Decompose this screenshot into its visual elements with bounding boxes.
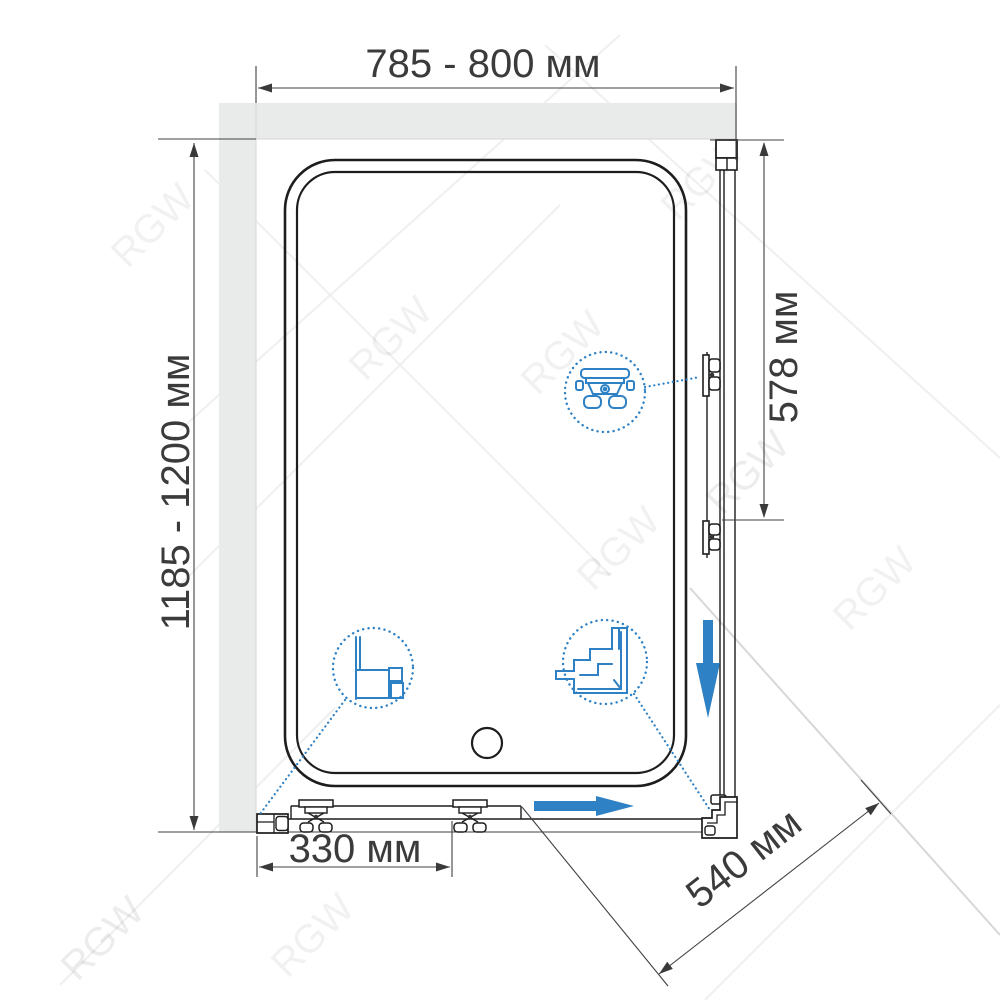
detail-callouts bbox=[260, 352, 710, 814]
dimension-label-side-panel-width: 540 мм bbox=[678, 801, 810, 917]
watermark-text: RGW bbox=[103, 176, 203, 276]
shower-enclosure-diagram: RGW RGW RGW RGW RGW RGW RGW RGW RGW bbox=[0, 0, 1000, 1000]
bracket-screw bbox=[710, 535, 715, 540]
dimension-label-top-width: 785 - 800 мм bbox=[365, 42, 600, 86]
wall-profile-icon bbox=[356, 637, 403, 699]
panel-bracket-top bbox=[703, 355, 720, 396]
door-roller bbox=[453, 800, 487, 832]
leader-line bbox=[634, 694, 710, 810]
left-wall bbox=[219, 103, 256, 832]
wall-profile-detail bbox=[333, 628, 413, 708]
watermark-text: RGW bbox=[513, 303, 613, 403]
panel-slide-arrow-down bbox=[696, 620, 720, 718]
diagram-canvas: RGW RGW RGW RGW RGW RGW RGW RGW RGW bbox=[0, 0, 1000, 1000]
watermark-text: RGW bbox=[263, 886, 363, 986]
side-panel-top-profile bbox=[716, 140, 737, 170]
dimension-top-width: 785 - 800 мм bbox=[256, 42, 736, 160]
watermark-text: RGW bbox=[53, 889, 153, 989]
dimension-label-left-height: 1185 - 1200 мм bbox=[154, 354, 198, 631]
corner-connector-detail bbox=[556, 620, 647, 704]
dimension-label-door-bottom: 330 мм bbox=[289, 827, 422, 871]
corner-connector bbox=[702, 795, 737, 838]
dimension-label-right-panel: 578 мм bbox=[762, 291, 806, 424]
door-slide-arrow-right bbox=[534, 796, 634, 816]
watermark-text: RGW bbox=[653, 129, 753, 229]
roller-carriage-icon bbox=[576, 369, 634, 408]
corner-connector-icon bbox=[556, 628, 627, 693]
detail-circle bbox=[563, 620, 647, 704]
roller-carriage-detail bbox=[565, 352, 645, 432]
top-wall bbox=[253, 103, 737, 139]
drain-circle bbox=[472, 728, 502, 758]
watermark-text: RGW bbox=[698, 423, 798, 523]
bracket-screw bbox=[710, 373, 715, 378]
leader-line bbox=[260, 700, 345, 814]
leader-line bbox=[645, 377, 700, 387]
watermark-text: RGW bbox=[825, 539, 925, 639]
panel-bracket-bottom bbox=[703, 521, 720, 554]
left-wall-profile bbox=[257, 814, 288, 833]
